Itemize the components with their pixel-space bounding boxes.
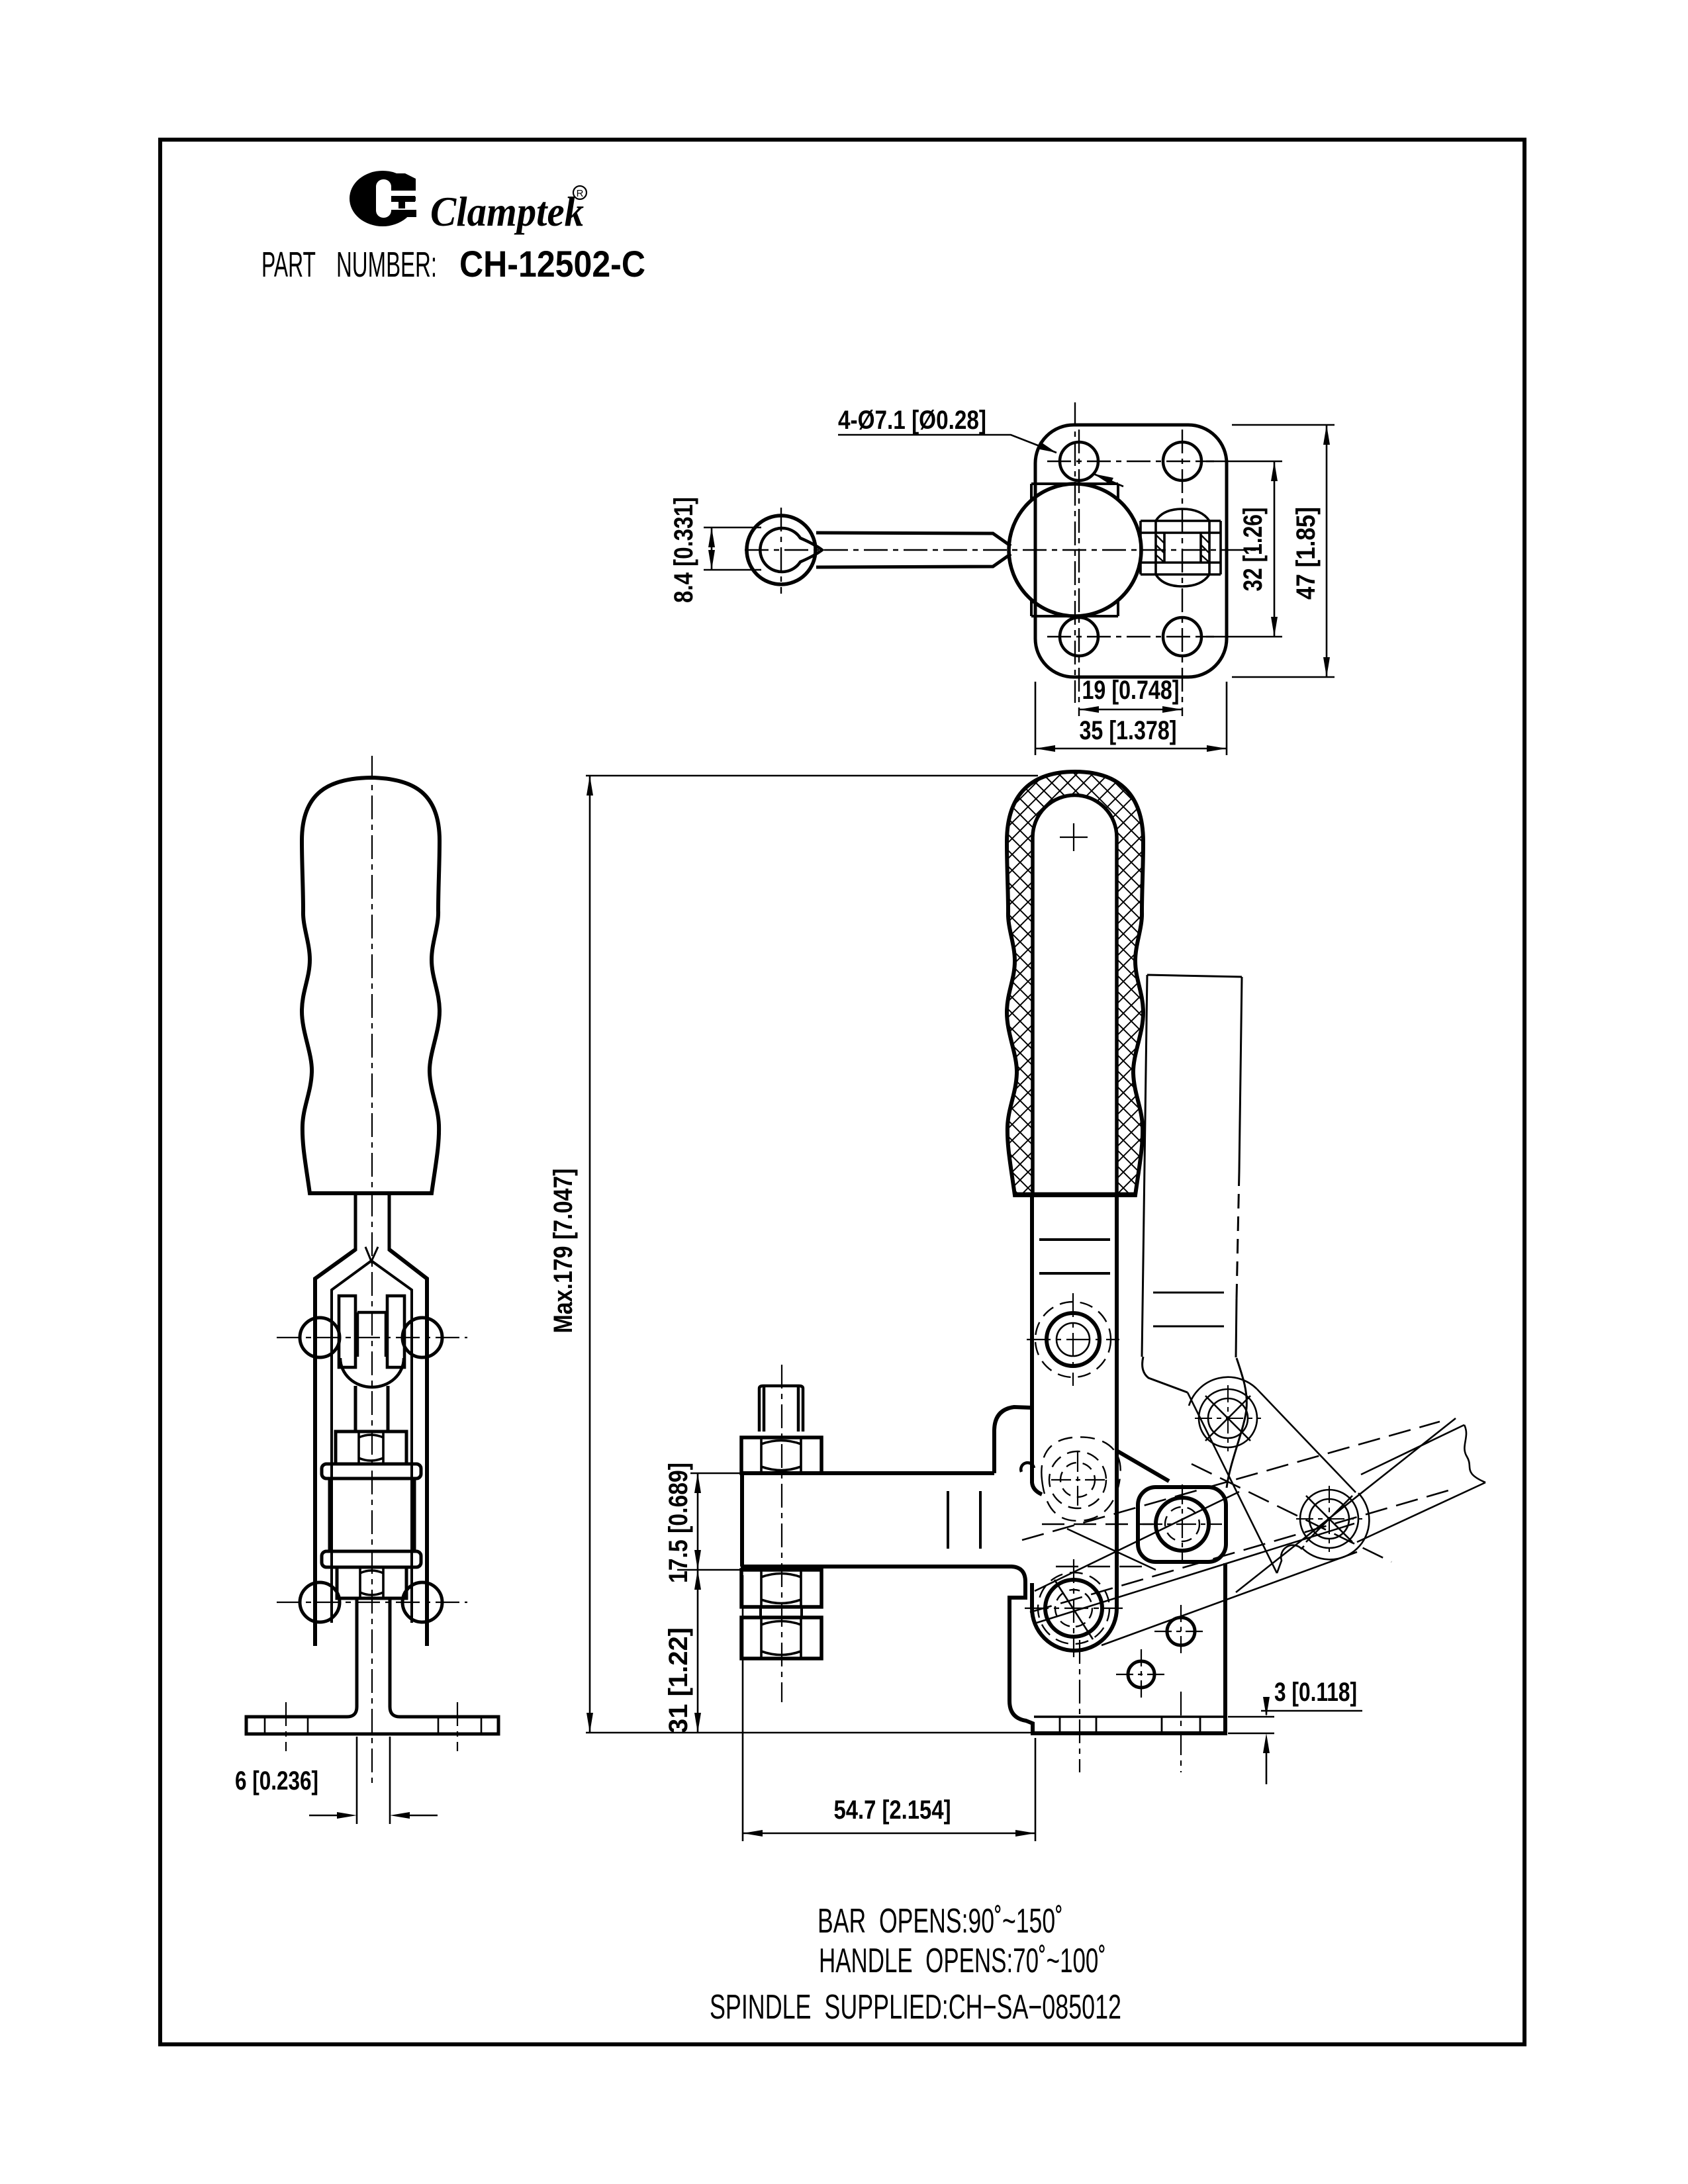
svg-text:32 [1.26]: 32 [1.26] (1239, 508, 1268, 592)
svg-text:NUMBER:: NUMBER: (336, 245, 437, 285)
svg-text:19 [0.748]: 19 [0.748] (1082, 676, 1180, 705)
svg-text:4-Ø7.1 [Ø0.28]: 4-Ø7.1 [Ø0.28] (838, 406, 986, 435)
svg-text:PART: PART (261, 245, 316, 285)
svg-text:R: R (577, 188, 584, 199)
svg-text:35 [1.378]: 35 [1.378] (1080, 716, 1177, 745)
svg-text:54.7 [2.154]: 54.7 [2.154] (834, 1796, 951, 1825)
svg-text:SPINDLE SUPPLIED:CH−SA−085012: SPINDLE SUPPLIED:CH−SA−085012 (710, 1988, 1121, 2026)
svg-text:BAR OPENS:90˚~150˚: BAR OPENS:90˚~150˚ (818, 1902, 1063, 1940)
svg-text:31 [1.22]: 31 [1.22] (664, 1627, 693, 1733)
svg-text:6 [0.236]: 6 [0.236] (235, 1766, 318, 1796)
svg-text:CH-12502-C: CH-12502-C (459, 243, 645, 285)
svg-text:3 [0.118]: 3 [0.118] (1274, 1678, 1357, 1707)
svg-text:8.4 [0.331]: 8.4 [0.331] (669, 497, 698, 603)
svg-text:17.5 [0.689]: 17.5 [0.689] (664, 1463, 693, 1583)
svg-text:Max.179 [7.047]: Max.179 [7.047] (549, 1169, 578, 1334)
svg-text:47 [1.85]: 47 [1.85] (1291, 507, 1321, 600)
svg-text:Clamptek: Clamptek (430, 188, 584, 235)
svg-text:HANDLE OPENS:70˚~100˚: HANDLE OPENS:70˚~100˚ (819, 1942, 1106, 1980)
